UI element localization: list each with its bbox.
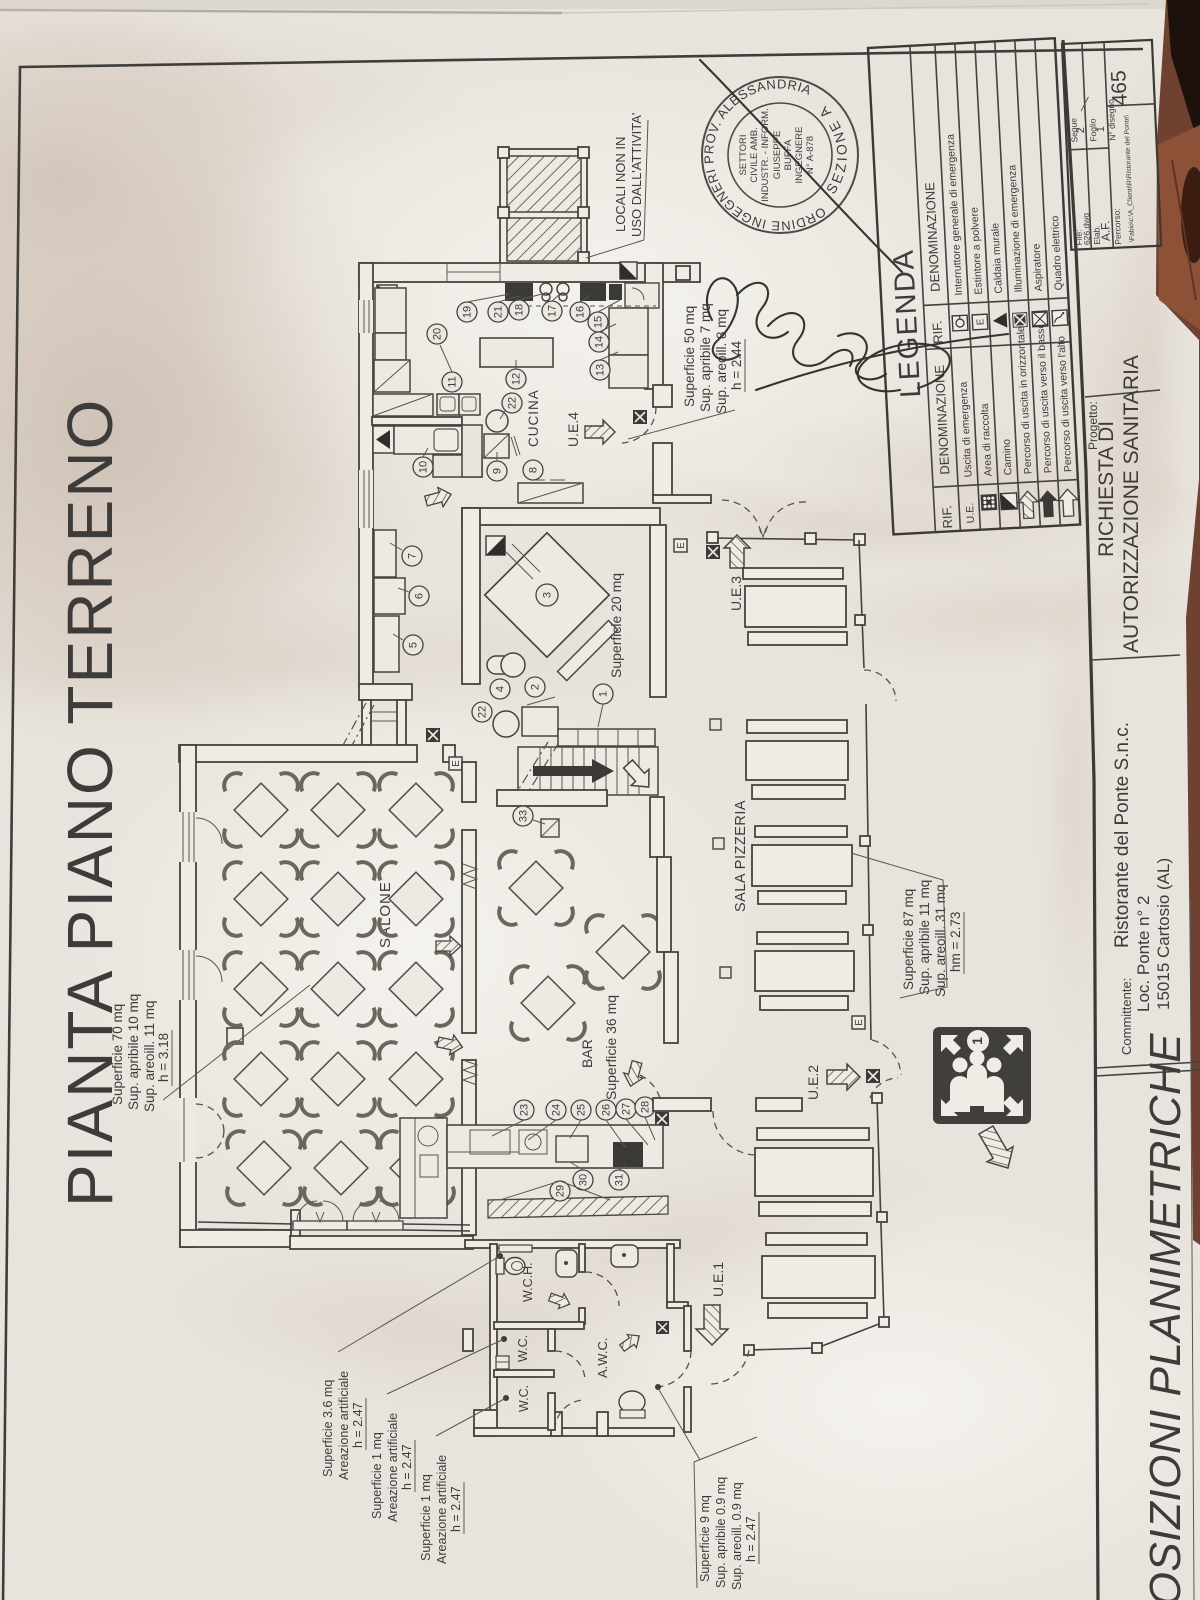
svg-text:E: E (854, 1019, 865, 1026)
svg-text:Superficie 1 mq: Superficie 1 mq (370, 1432, 384, 1519)
svg-text:W.C.H.: W.C.H. (521, 1262, 535, 1302)
svg-text:Sup. areoill. 11 mq: Sup. areoill. 11 mq (142, 1000, 157, 1112)
svg-text:20: 20 (432, 328, 444, 340)
svg-text:Superficie 36 mq: Superficie 36 mq (603, 995, 619, 1100)
svg-text:RICHIESTA DI: RICHIESTA DI (1095, 421, 1118, 557)
svg-text:12: 12 (511, 373, 523, 385)
svg-text:INDUSTR. - INFORM.: INDUSTR. - INFORM. (760, 108, 771, 201)
svg-text:Superficie 1 mq: Superficie 1 mq (419, 1474, 433, 1561)
svg-text:RIF.: RIF. (929, 320, 945, 344)
svg-text:16: 16 (575, 306, 587, 318)
svg-text:33: 33 (518, 810, 530, 822)
svg-text:Percorso:: Percorso: (1112, 208, 1124, 245)
svg-text:U.E.: U.E. (964, 503, 977, 524)
svg-text:28: 28 (640, 1101, 652, 1113)
svg-text:15015 Cartosio (AL): 15015 Cartosio (AL) (1154, 858, 1173, 1010)
svg-text:26: 26 (601, 1104, 613, 1116)
svg-text:U.E.1: U.E.1 (710, 1262, 726, 1297)
svg-text:Areazione artificiale: Areazione artificiale (337, 1371, 351, 1480)
svg-text:14: 14 (594, 336, 606, 348)
svg-text:h = 2.47: h = 2.47 (744, 1516, 758, 1562)
svg-text:RIF.: RIF. (939, 505, 955, 529)
svg-text:2: 2 (1075, 127, 1087, 134)
svg-text:Superficie 87 mq: Superficie 87 mq (901, 889, 916, 990)
svg-text:Aspiratore: Aspiratore (1030, 243, 1044, 292)
svg-text:h = 2.47: h = 2.47 (449, 1486, 463, 1532)
svg-text:626.dwg: 626.dwg (1081, 212, 1092, 245)
svg-text:22: 22 (507, 397, 519, 409)
svg-text:Sup. apribile 0.9 mq: Sup. apribile 0.9 mq (714, 1477, 728, 1588)
svg-text:Areazione artificiale: Areazione artificiale (435, 1455, 449, 1564)
svg-text:13: 13 (595, 364, 607, 376)
svg-text:E: E (975, 318, 986, 326)
svg-text:19: 19 (462, 306, 474, 318)
svg-text:21: 21 (493, 306, 505, 318)
svg-text:Superficie 20 mq: Superficie 20 mq (608, 573, 624, 678)
svg-text:SPOSIZIONI PLANIMETRICHE: SPOSIZIONI PLANIMETRICHE (1141, 1033, 1190, 1600)
svg-text:23: 23 (519, 1104, 531, 1116)
svg-text:U.E.3: U.E.3 (728, 576, 744, 611)
svg-text:E: E (676, 542, 687, 549)
svg-text:A.W.C.: A.W.C. (595, 1338, 610, 1378)
svg-text:15: 15 (593, 316, 605, 328)
svg-text:SALONE: SALONE (377, 881, 394, 948)
svg-text:10: 10 (418, 461, 430, 473)
svg-text:Sup. apribile 11 mq: Sup. apribile 11 mq (917, 880, 932, 995)
svg-text:CUCINA: CUCINA (526, 389, 541, 447)
svg-text:27: 27 (621, 1103, 633, 1115)
svg-text:3: 3 (542, 592, 554, 598)
svg-text:Superficie 50 mq: Superficie 50 mq (682, 306, 697, 407)
svg-text:BAR: BAR (579, 1039, 595, 1068)
svg-text:8: 8 (528, 467, 540, 473)
svg-text:E: E (451, 760, 462, 767)
svg-text:Sup. areoill. 8 mq: Sup. areoill. 8 mq (714, 309, 729, 414)
svg-text:1: 1 (1095, 126, 1107, 133)
svg-text:AUTORIZZAZIONE SANITARIA: AUTORIZZAZIONE SANITARIA (1120, 355, 1143, 653)
svg-text:4: 4 (495, 686, 507, 692)
svg-text:17: 17 (547, 305, 559, 317)
svg-text:Loc. Ponte n° 2: Loc. Ponte n° 2 (1134, 896, 1153, 1012)
svg-text:h = 2.44: h = 2.44 (729, 340, 744, 390)
svg-text:24: 24 (551, 1104, 563, 1116)
svg-text:1: 1 (598, 691, 610, 697)
svg-text:hm = 2.73: hm = 2.73 (948, 912, 963, 972)
svg-text:INGEGNERE: INGEGNERE (794, 126, 805, 183)
svg-text:2: 2 (530, 684, 542, 690)
svg-text:SETTORI: SETTORI (738, 135, 749, 176)
svg-text:9: 9 (492, 468, 504, 474)
svg-text:465: 465 (1107, 70, 1132, 106)
svg-text:1: 1 (969, 1037, 985, 1045)
svg-text:U.E.2: U.E.2 (805, 1065, 821, 1100)
svg-text:h = 3.18: h = 3.18 (156, 1033, 171, 1082)
svg-text:Superficie 3.6 mq: Superficie 3.6 mq (321, 1380, 335, 1477)
svg-text:Ristorante del Ponte S.n.c.: Ristorante del Ponte S.n.c. (1112, 722, 1133, 948)
svg-text:W.C.: W.C. (516, 1335, 530, 1362)
svg-text:Areazione artificiale: Areazione artificiale (386, 1413, 400, 1522)
svg-text:30: 30 (578, 1174, 590, 1186)
svg-text:Superficie 70 mq: Superficie 70 mq (110, 1004, 125, 1105)
svg-text:25: 25 (576, 1104, 588, 1116)
svg-text:5: 5 (408, 642, 420, 648)
svg-text:18: 18 (514, 304, 526, 316)
svg-text:USO DALL'ATTIVITA': USO DALL'ATTIVITA' (629, 113, 644, 237)
svg-text:LOCALI NON IN: LOCALI NON IN (613, 137, 628, 232)
svg-text:22: 22 (477, 706, 489, 718)
svg-text:CIVILE AMB.: CIVILE AMB. (749, 127, 760, 182)
svg-text:U.E.4: U.E.4 (565, 412, 581, 447)
svg-text:29: 29 (555, 1185, 567, 1197)
svg-text:31: 31 (614, 1174, 626, 1186)
svg-text:Sup. areoill. 0.9 mq: Sup. areoill. 0.9 mq (730, 1482, 744, 1590)
svg-text:11: 11 (447, 376, 459, 387)
svg-text:W.C.: W.C. (517, 1385, 531, 1412)
svg-text:N° A-878: N° A-878 (805, 136, 816, 174)
svg-text:A.F.: A.F. (1098, 220, 1113, 241)
svg-text:SALA PIZZERIA: SALA PIZZERIA (733, 800, 749, 912)
svg-text:BUFFA: BUFFA (783, 139, 794, 170)
svg-text:h = 2.47: h = 2.47 (400, 1444, 414, 1490)
svg-text:h = 2.47: h = 2.47 (351, 1402, 365, 1448)
svg-text:Sup. apribile 10 mq: Sup. apribile 10 mq (126, 994, 141, 1110)
svg-text:Camino: Camino (1001, 439, 1015, 476)
svg-text:Superficie 9 mq: Superficie 9 mq (698, 1495, 712, 1582)
svg-text:7: 7 (407, 553, 419, 559)
svg-text:Committente:: Committente: (1119, 978, 1134, 1055)
svg-text:6: 6 (414, 593, 426, 599)
